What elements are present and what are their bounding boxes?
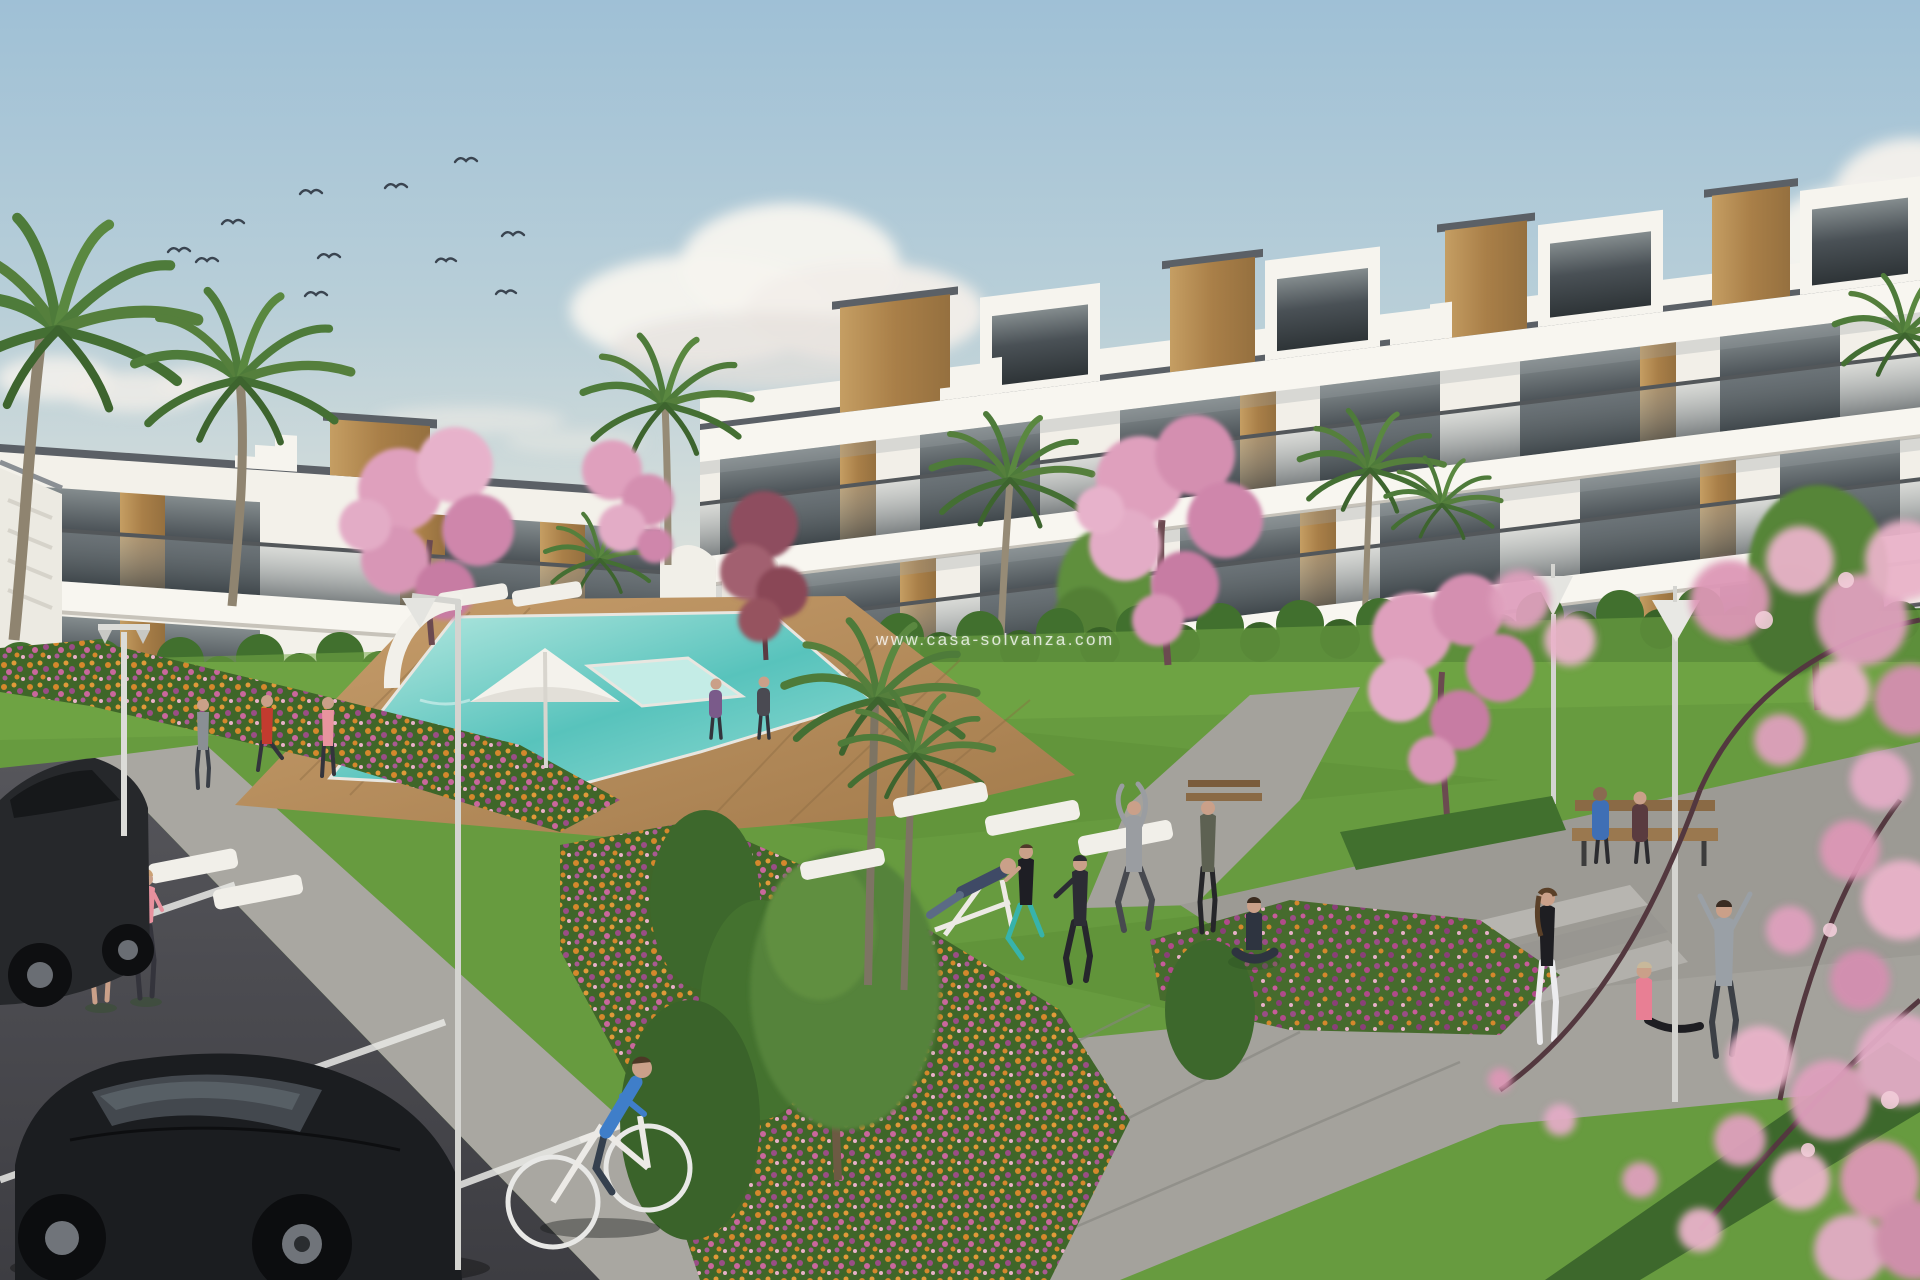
car-grey-partial [0,758,154,1007]
render-canvas: www.casa-solvanza.com [0,0,1920,1280]
watermark: www.casa-solvanza.com [876,630,1115,650]
